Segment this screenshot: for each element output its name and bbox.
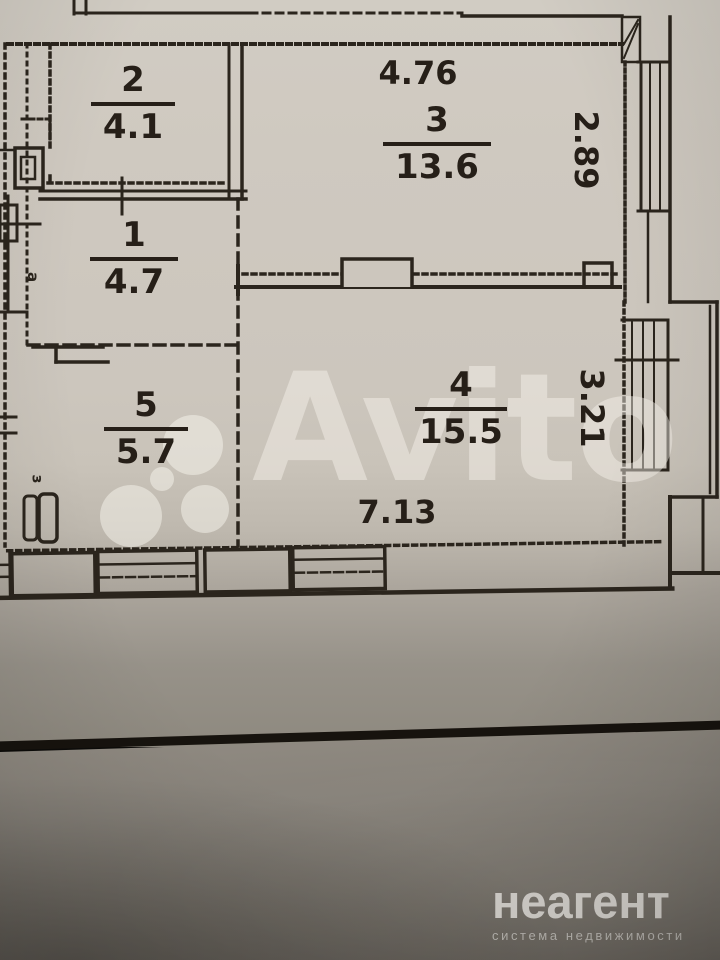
- dimension-bottom: 7.13: [337, 493, 457, 531]
- right-wall-and-windows: [616, 17, 720, 586]
- room-label-2: 2 4.1: [91, 63, 175, 145]
- room-area: 4.7: [90, 261, 178, 301]
- dimension-right-lower: 3.21: [573, 348, 611, 468]
- room-area: 15.5: [415, 411, 507, 451]
- room-number: 2: [91, 63, 175, 106]
- neagent-logo-tagline: система недвижимости: [492, 928, 702, 943]
- room-label-1: 1 4.7: [90, 218, 178, 300]
- neagent-logo: неагент система недвижимости: [492, 878, 702, 943]
- room-area: 5.7: [104, 431, 188, 471]
- room-number: 3: [383, 103, 491, 146]
- dimension-top: 4.76: [360, 54, 476, 92]
- neagent-logo-name: неагент: [492, 878, 702, 925]
- room-area: 4.1: [91, 106, 175, 146]
- shaft-label-lower: з: [28, 475, 46, 484]
- dimension-right-upper: 2.89: [567, 90, 605, 210]
- room-number: 4: [415, 368, 507, 411]
- floor-plan-photo: Avito 2 4.1 1 4.7 5 5.7 3 13.6 4 15.5 4.…: [0, 0, 720, 960]
- room-label-3: 3 13.6: [383, 103, 491, 185]
- room-number: 5: [104, 388, 188, 431]
- shaft-label-upper: а: [24, 272, 42, 282]
- room-label-4: 4 15.5: [415, 368, 507, 450]
- bottom-wall-and-windows: [0, 542, 672, 598]
- room-number: 1: [90, 218, 178, 261]
- paper-edge-line: [0, 712, 720, 758]
- room-area: 13.6: [383, 146, 491, 186]
- room-label-5: 5 5.7: [104, 388, 188, 470]
- partition-rooms-3-4: [236, 259, 620, 294]
